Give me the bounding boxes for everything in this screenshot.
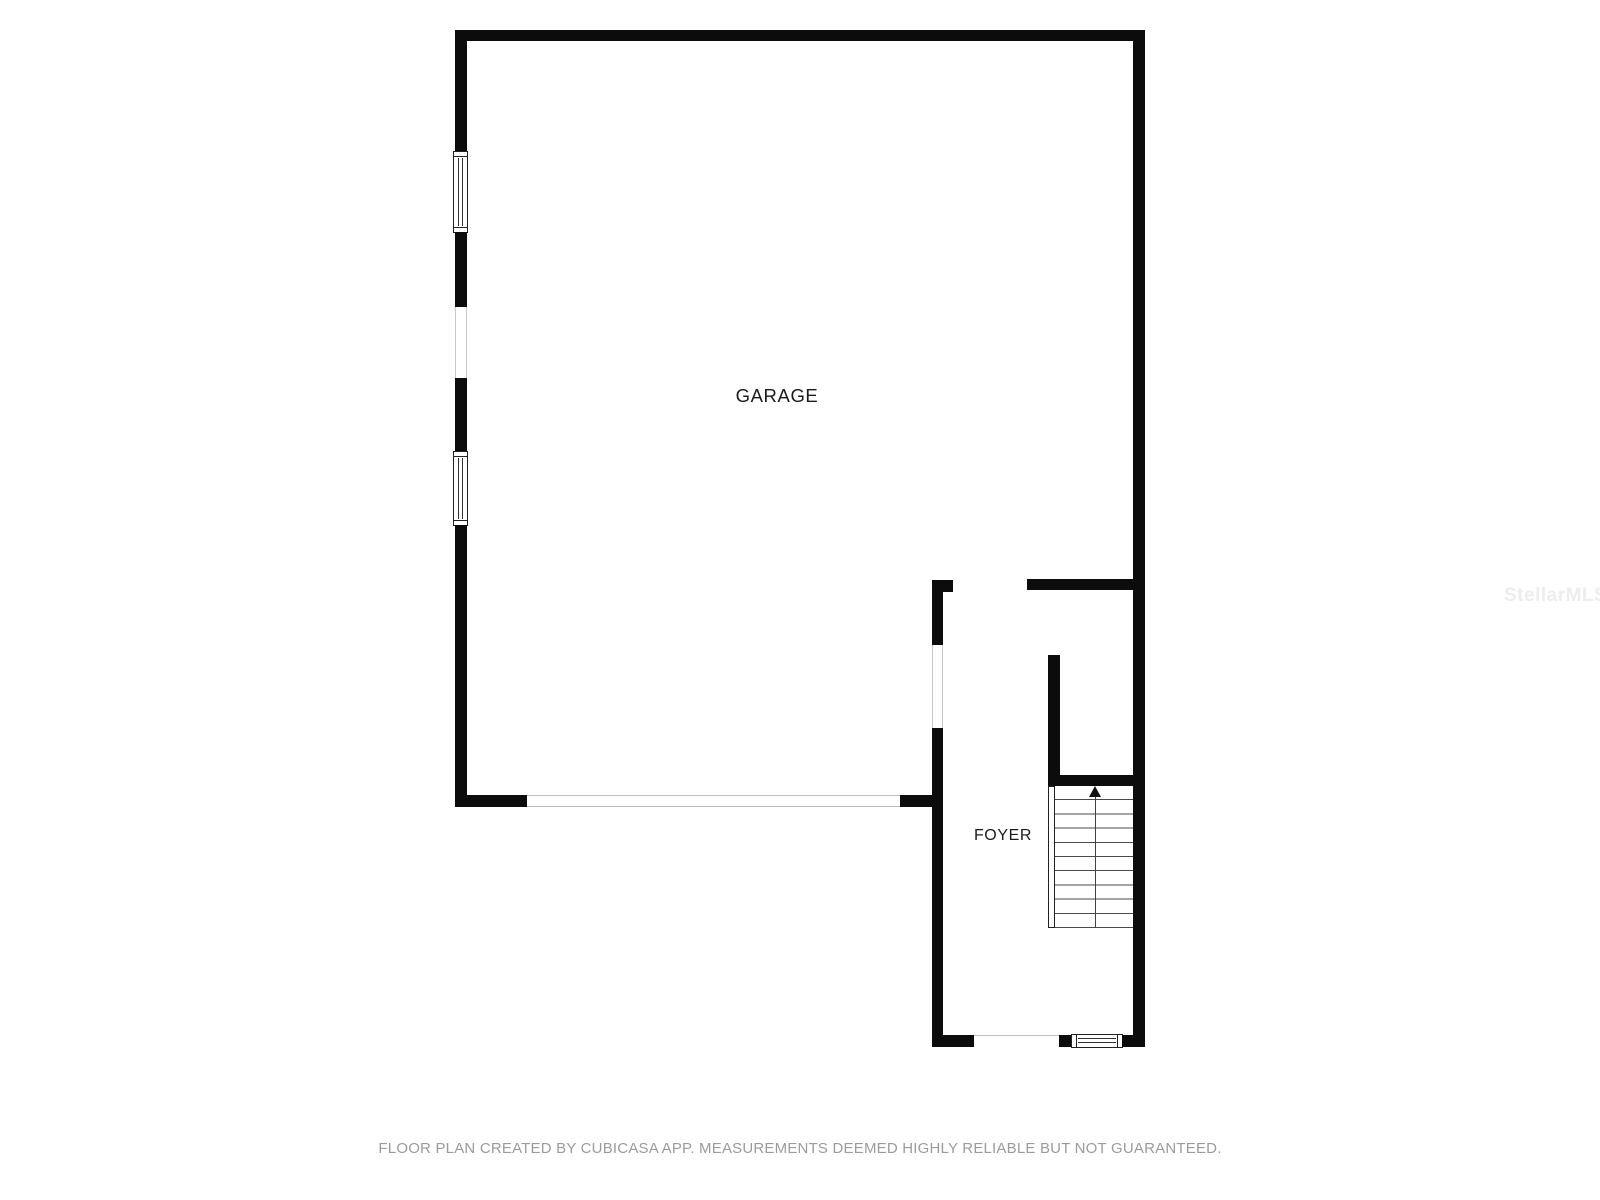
- garage-top-wall: [455, 30, 1145, 41]
- garage-to-foyer-doorway: [932, 645, 943, 728]
- stellar-mls-watermark: StellarMLS: [1504, 585, 1600, 607]
- garage-left-wall-segment-4: [455, 525, 467, 807]
- garage-window-lower: [453, 451, 468, 526]
- foyer-entry-opening: [974, 1035, 1059, 1047]
- stair-stringer: [1048, 786, 1055, 928]
- garage-left-wall-opening: [455, 307, 467, 378]
- garage-left-wall-segment-2: [455, 232, 467, 307]
- stair-direction-line: [1095, 797, 1096, 928]
- arrow-up-icon: [1089, 786, 1101, 797]
- foyer-room-label: FOYER: [943, 827, 1063, 845]
- stair-side-wall: [1048, 655, 1060, 786]
- window-frame-cap: [1076, 1035, 1077, 1047]
- right-outer-wall: [1133, 30, 1145, 1047]
- window-pane: [458, 158, 463, 226]
- garage-left-wall-segment-3: [455, 378, 467, 452]
- window-frame-cap: [454, 456, 467, 457]
- window-frame-cap: [454, 520, 467, 521]
- staircase: [1055, 786, 1133, 928]
- window-pane: [458, 458, 463, 519]
- stair-top-wall: [1048, 775, 1135, 786]
- window-frame-cap: [454, 227, 467, 228]
- foyer-front-door-sill: [1071, 1034, 1123, 1048]
- foyer-left-wall-top-stub: [932, 580, 953, 592]
- garage-window-upper: [453, 151, 468, 233]
- floor-plan: GARAGE FOYER: [0, 0, 1600, 1200]
- window-frame-cap: [1117, 1035, 1118, 1047]
- garage-room-label: GARAGE: [677, 385, 877, 407]
- window-frame-cap: [454, 156, 467, 157]
- window-pane: [1078, 1038, 1116, 1043]
- garage-left-wall-segment-1: [455, 30, 467, 152]
- foyer-bottom-wall-left: [932, 1035, 974, 1047]
- foyer-bottom-wall-right: [1122, 1035, 1145, 1047]
- foyer-top-wall: [1027, 579, 1145, 590]
- garage-bottom-wall-left-stub: [455, 795, 527, 807]
- foyer-left-wall-lower: [932, 728, 943, 1047]
- garage-door-opening: [527, 795, 900, 807]
- footer-disclaimer: FLOOR PLAN CREATED BY CUBICASA APP. MEAS…: [0, 1140, 1600, 1157]
